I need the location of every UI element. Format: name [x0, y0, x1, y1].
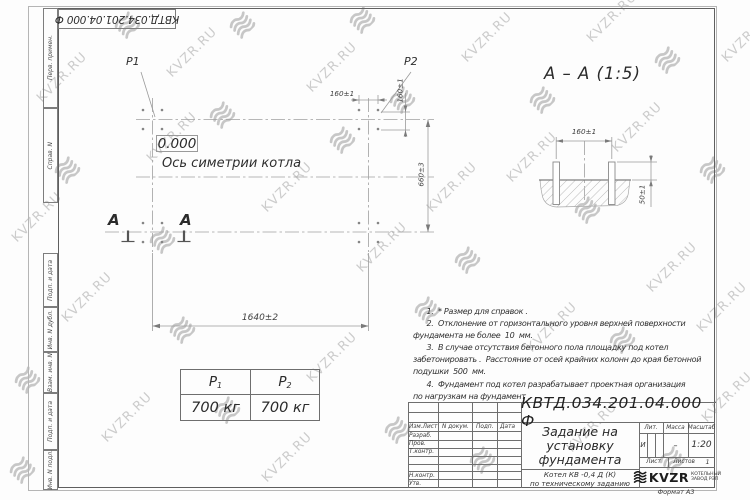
margin-field-podp-data-1: Подп. и дата	[43, 253, 58, 307]
p1-header-sub: 1	[217, 381, 222, 390]
col-n-dokum: N докум.	[442, 424, 469, 430]
corner-doc-number-box: КВТД.034.201.04.000 Ф	[58, 9, 176, 29]
logo-caption-line2: ЗАВОД РЭП	[691, 477, 721, 482]
sheet-label: Лист	[639, 457, 668, 467]
sheets-value: 1	[706, 458, 710, 466]
p1-header-label: P	[209, 374, 217, 390]
watermark-text: KVZR.RU	[719, 9, 750, 65]
logo-caption: КОТЕЛЬНЫЙ ЗАВОД РЭП	[691, 472, 721, 482]
margin-field-label: Подп. и дата	[47, 260, 54, 301]
lit-value: И	[639, 433, 647, 457]
note-line: 1. * Размер для справок .	[413, 306, 715, 318]
margin-field-label: Инв. N подл.	[47, 450, 54, 490]
row-razrab: Разраб.	[409, 433, 432, 439]
col-data: Дата	[500, 424, 515, 430]
row-nkontr: Н.контр.	[409, 473, 435, 479]
load-table-header-p2: P2	[251, 370, 319, 394]
margin-field-inv-n-dubl: Инв. N дубл.	[43, 307, 58, 352]
p2-header-sub: 2	[287, 381, 292, 390]
section-dim-protrusion: 50±1	[638, 177, 647, 213]
margin-field-label: Справ. N	[47, 142, 54, 169]
mass-header: Масса	[663, 422, 688, 433]
subtitle-line-2: по техническому заданию	[521, 479, 639, 488]
note-line: фундамента не более 10 мм.	[413, 330, 715, 342]
dim-height-660: 660±3	[417, 153, 426, 197]
title-block-title: Задание на установку фундамента	[523, 423, 637, 469]
corner-doc-number: КВТД.034.201.04.000 Ф	[55, 13, 179, 25]
load-table-header-p1: P1	[181, 370, 250, 394]
margin-field-label: Инв. N дубл.	[47, 310, 54, 349]
drawing-sheet: { "sheet": { "doc_number": "КВТД.034.201…	[0, 0, 750, 500]
p2-header-label: P	[278, 374, 286, 390]
note-line: 4. Фундамент под котел разрабатывает про…	[413, 379, 715, 391]
scale-value: 1:20	[688, 433, 715, 457]
col-izm-list: Изм.Лист	[409, 424, 437, 430]
col-podp: Подп.	[476, 424, 494, 430]
section-mark-a-right: А	[180, 211, 192, 229]
margin-field-inv-n-podl: Инв. N подл.	[43, 450, 58, 490]
load-table: P1 P2 700 кг 700 кг	[180, 369, 320, 421]
title-block-subtitle: Котел КВ -0,4 Д (К) по техническому зада…	[521, 470, 639, 488]
sheets-label: Листов	[673, 459, 695, 465]
margin-field-podp-data-2: Подп. и дата	[43, 393, 58, 450]
logo-cell: KVZR КОТЕЛЬНЫЙ ЗАВОД РЭП	[639, 467, 715, 487]
dim-bolt-pitch-v: 160±1	[396, 71, 405, 111]
dim-bolt-pitch-h: 160±1	[325, 89, 359, 98]
p1-label: P1	[126, 55, 140, 68]
dim-width-1640: 1640±2	[225, 313, 295, 323]
technical-notes: 1. * Размер для справок . 2. Отклонение …	[413, 306, 715, 403]
p2-label: P2	[404, 55, 418, 68]
level-mark-box: 0.000	[156, 135, 198, 152]
mass-value: –	[663, 433, 688, 457]
note-line: 3. В случае отсутствия бетонного пола пл…	[413, 342, 715, 354]
scale-header: Масштаб	[688, 422, 715, 433]
section-mark-a-left: А	[108, 211, 120, 229]
note-line: 2. Отклонение от горизонтального уровня …	[413, 318, 715, 330]
margin-field-label: Взам. инв. N	[47, 353, 54, 392]
section-title: А – А (1:5)	[544, 64, 641, 83]
margin-field-vzam-inv-n: Взам. инв. N	[43, 352, 58, 393]
note-line: забетонировать . Расстояние от осей край…	[413, 354, 715, 366]
format-label: Формат А3	[641, 488, 711, 496]
kvzr-coil-icon	[633, 471, 647, 483]
load-table-value-p2: 700 кг	[251, 395, 319, 420]
row-tkontr: Т.контр.	[409, 449, 434, 455]
row-utv: Утв.	[409, 481, 421, 487]
margin-field-label: Перв. примен.	[47, 35, 54, 80]
lit-header: Лит.	[639, 422, 663, 433]
level-mark: 0.000	[158, 136, 197, 152]
logo-text: KVZR	[649, 470, 689, 485]
section-dim-spacing: 160±1	[564, 127, 604, 136]
row-prov: Пров.	[409, 441, 426, 447]
title-block-doc-number: КВТД.034.201.04.000 Ф	[521, 402, 715, 422]
subtitle-line-1: Котел КВ -0,4 Д (К)	[521, 470, 639, 479]
boiler-axis-label: Ось симетрии котла	[162, 156, 301, 171]
note-line: подушки 500 мм.	[413, 366, 715, 378]
load-table-value-p1: 700 кг	[181, 395, 250, 420]
sheets-cell: Листов 1	[668, 457, 715, 467]
margin-field-sprav-n: Справ. N	[43, 108, 58, 203]
margin-field-label: Подп. и дата	[47, 401, 54, 442]
